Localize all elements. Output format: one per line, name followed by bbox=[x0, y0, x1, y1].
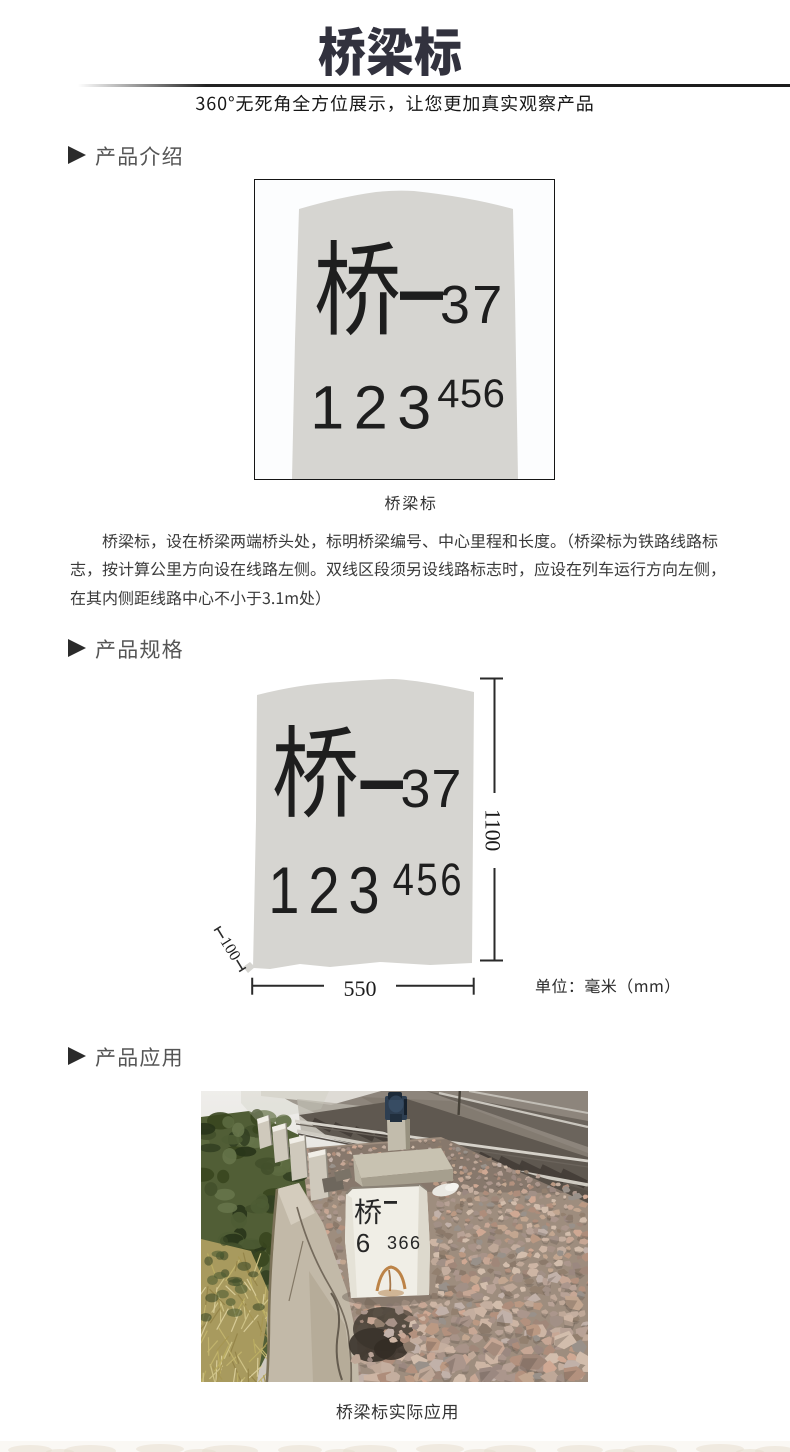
svg-text:6: 6 bbox=[356, 1228, 370, 1258]
svg-text:37: 37 bbox=[440, 275, 505, 335]
svg-text:37: 37 bbox=[400, 759, 462, 819]
svg-text:100: 100 bbox=[216, 934, 243, 963]
svg-text:456: 456 bbox=[393, 854, 464, 905]
svg-text:123: 123 bbox=[268, 854, 388, 927]
svg-text:桥: 桥 bbox=[314, 207, 401, 357]
svg-text:123: 123 bbox=[310, 373, 441, 441]
svg-text:1100: 1100 bbox=[480, 809, 505, 851]
svg-text:桥: 桥 bbox=[354, 1191, 382, 1231]
svg-text:550: 550 bbox=[344, 976, 377, 1001]
svg-text:桥: 桥 bbox=[272, 694, 359, 839]
svg-text:366: 366 bbox=[387, 1233, 422, 1253]
svg-text:456: 456 bbox=[437, 372, 505, 416]
